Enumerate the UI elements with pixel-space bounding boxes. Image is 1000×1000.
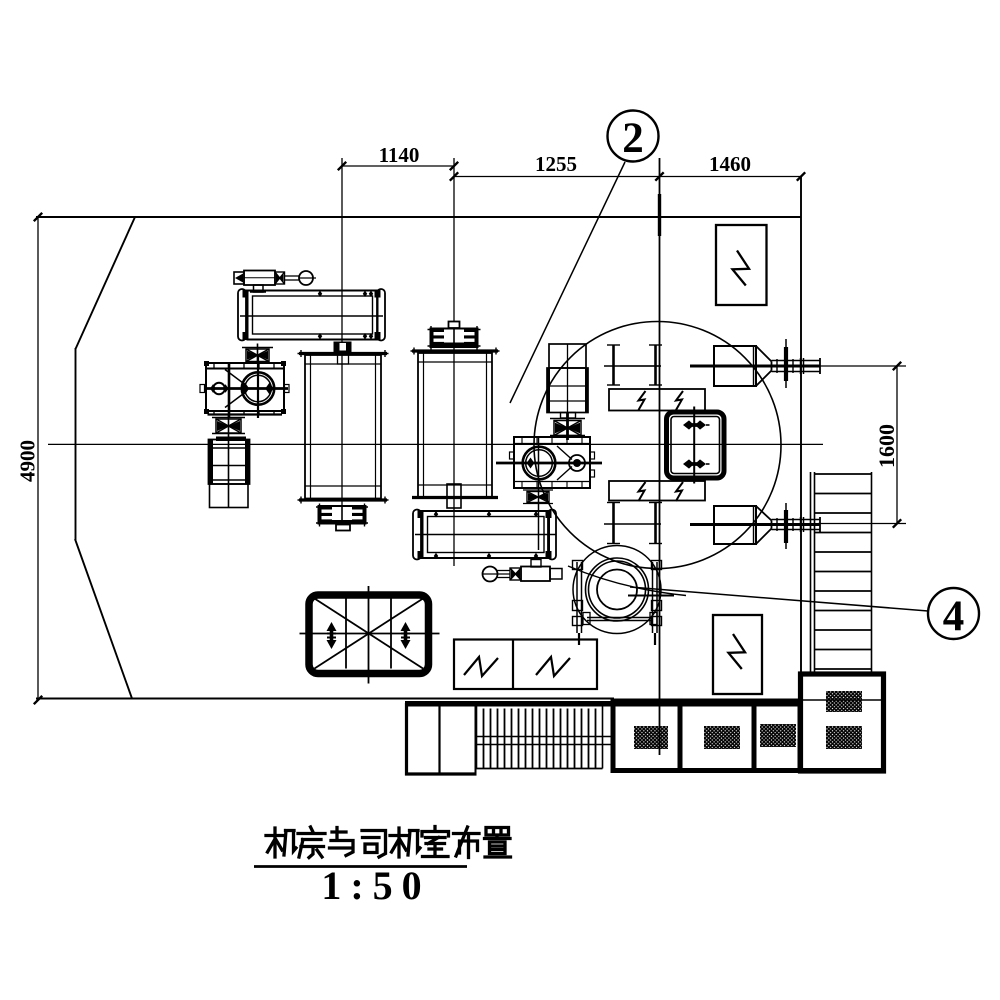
svg-text:1:50: 1:50 [321, 863, 430, 908]
svg-text:4: 4 [943, 593, 965, 640]
svg-text:1255: 1255 [535, 152, 577, 176]
svg-text:2: 2 [622, 115, 644, 162]
svg-text:1600: 1600 [874, 424, 899, 468]
svg-text:1460: 1460 [709, 152, 751, 176]
svg-text:4900: 4900 [16, 440, 40, 482]
svg-text:1140: 1140 [379, 143, 420, 167]
